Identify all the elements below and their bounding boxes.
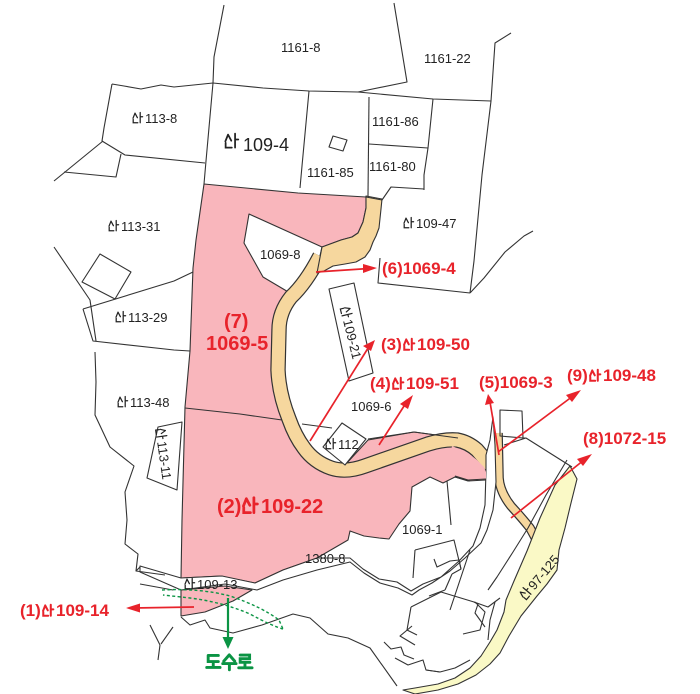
svg-text:1161-22: 1161-22 bbox=[424, 51, 471, 66]
svg-text:1380-8: 1380-8 bbox=[305, 551, 345, 566]
svg-text:1161-8: 1161-8 bbox=[281, 40, 321, 55]
svg-text:(2): (2) bbox=[217, 496, 241, 518]
svg-text:109-22: 109-22 bbox=[261, 496, 323, 518]
svg-text:109-13: 109-13 bbox=[197, 577, 237, 592]
svg-text:109-50: 109-50 bbox=[417, 335, 470, 354]
svg-text:109-14: 109-14 bbox=[56, 601, 109, 620]
svg-text:(3): (3) bbox=[381, 335, 402, 354]
svg-text:109-4: 109-4 bbox=[243, 135, 289, 155]
svg-text:1069-5: 1069-5 bbox=[206, 333, 268, 355]
svg-text:112: 112 bbox=[338, 437, 359, 452]
svg-text:(1): (1) bbox=[20, 601, 41, 620]
svg-text:113-8: 113-8 bbox=[145, 111, 177, 126]
svg-text:1161-86: 1161-86 bbox=[372, 114, 419, 129]
svg-text:1069-6: 1069-6 bbox=[351, 399, 391, 414]
svg-text:(6)1069-4: (6)1069-4 bbox=[382, 259, 456, 278]
svg-text:109-47: 109-47 bbox=[416, 216, 456, 231]
svg-text:(7): (7) bbox=[224, 311, 248, 333]
svg-text:1069-8: 1069-8 bbox=[260, 247, 300, 262]
svg-text:109-48: 109-48 bbox=[603, 366, 656, 385]
svg-text:(4): (4) bbox=[370, 374, 391, 393]
svg-text:(9): (9) bbox=[567, 366, 588, 385]
svg-text:113-48: 113-48 bbox=[130, 395, 170, 410]
svg-text:113-31: 113-31 bbox=[121, 219, 161, 234]
svg-text:109-51: 109-51 bbox=[406, 374, 459, 393]
svg-text:113-29: 113-29 bbox=[128, 310, 168, 325]
svg-text:1069-1: 1069-1 bbox=[402, 522, 442, 537]
svg-text:1161-85: 1161-85 bbox=[307, 165, 354, 180]
svg-text:(5)1069-3: (5)1069-3 bbox=[479, 373, 553, 392]
svg-text:(8)1072-15: (8)1072-15 bbox=[583, 429, 666, 448]
svg-text:1161-80: 1161-80 bbox=[369, 159, 416, 174]
